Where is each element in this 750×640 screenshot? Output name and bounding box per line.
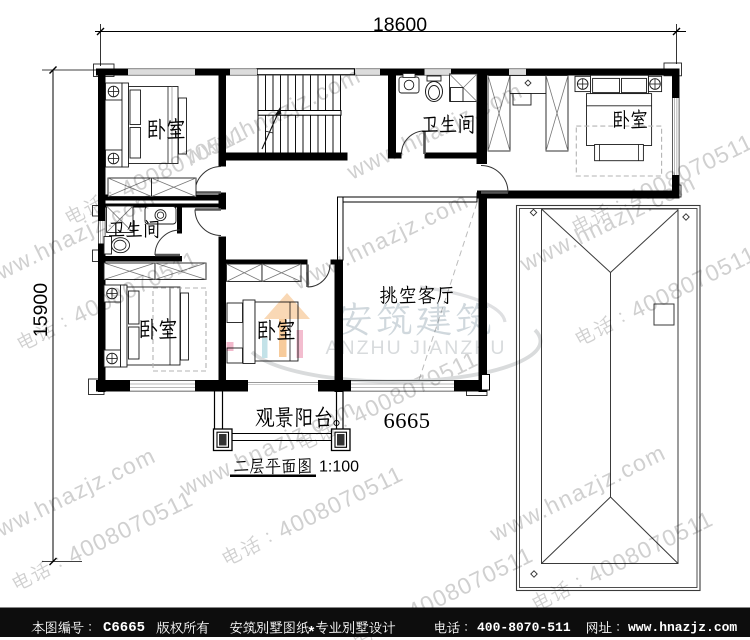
svg-text:www.hnazjz.com: www.hnazjz.com [628,620,737,635]
svg-text:ANZHU JIANZHU: ANZHU JIANZHU [326,337,507,359]
svg-text:*: * [309,623,315,640]
svg-text:6665: 6665 [384,408,431,433]
svg-text:15900: 15900 [30,283,52,337]
svg-text:C6665: C6665 [103,620,145,636]
svg-text:18600: 18600 [373,14,427,36]
svg-text:400-8070-511: 400-8070-511 [477,620,571,635]
svg-text:1:100: 1:100 [319,459,359,476]
